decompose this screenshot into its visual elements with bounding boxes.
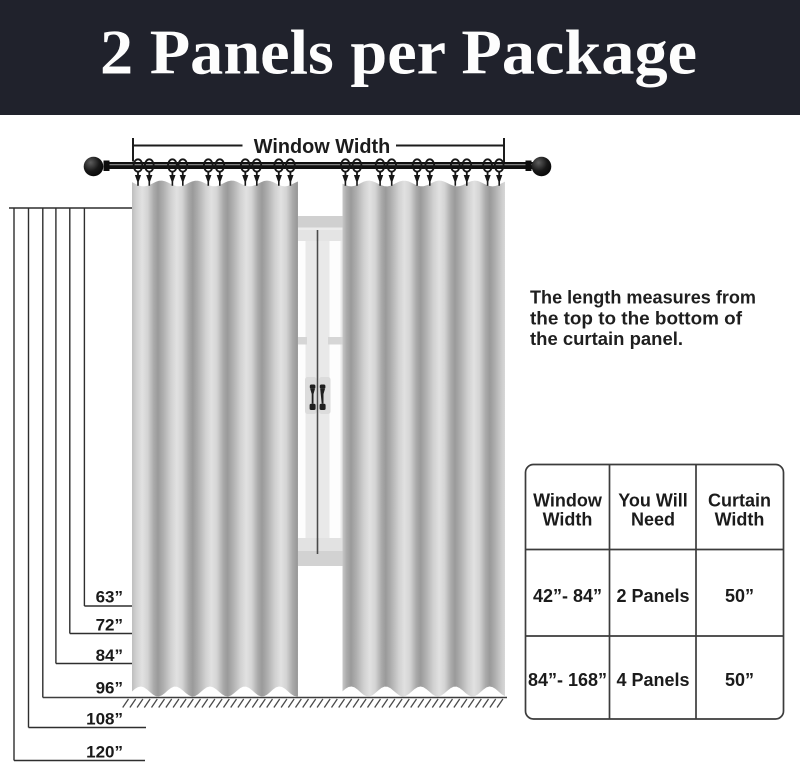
svg-text:You Will: You Will <box>618 491 688 511</box>
svg-text:63”: 63” <box>96 588 123 607</box>
svg-text:Curtain: Curtain <box>708 491 771 511</box>
svg-text:50”: 50” <box>725 670 754 690</box>
svg-text:Need: Need <box>631 510 675 530</box>
svg-text:84”: 84” <box>96 646 123 665</box>
svg-text:the curtain panel.: the curtain panel. <box>530 329 683 349</box>
svg-text:50”: 50” <box>725 586 754 606</box>
svg-text:72”: 72” <box>96 616 123 635</box>
svg-text:2 Panels: 2 Panels <box>616 586 689 606</box>
svg-text:120”: 120” <box>86 743 123 762</box>
svg-text:Window: Window <box>533 491 603 511</box>
svg-text:108”: 108” <box>86 710 123 729</box>
svg-text:4 Panels: 4 Panels <box>616 670 689 690</box>
svg-text:Width: Width <box>543 510 593 530</box>
svg-text:42”- 84”: 42”- 84” <box>533 586 602 606</box>
svg-text:84”- 168”: 84”- 168” <box>528 670 607 690</box>
svg-text:2 Panels per Package: 2 Panels per Package <box>100 17 697 88</box>
svg-text:Window Width: Window Width <box>254 135 391 158</box>
svg-text:96”: 96” <box>96 679 123 698</box>
svg-text:The length measures from: The length measures from <box>530 288 756 308</box>
svg-text:Width: Width <box>715 510 765 530</box>
svg-text:the top to the bottom of: the top to the bottom of <box>530 308 743 328</box>
